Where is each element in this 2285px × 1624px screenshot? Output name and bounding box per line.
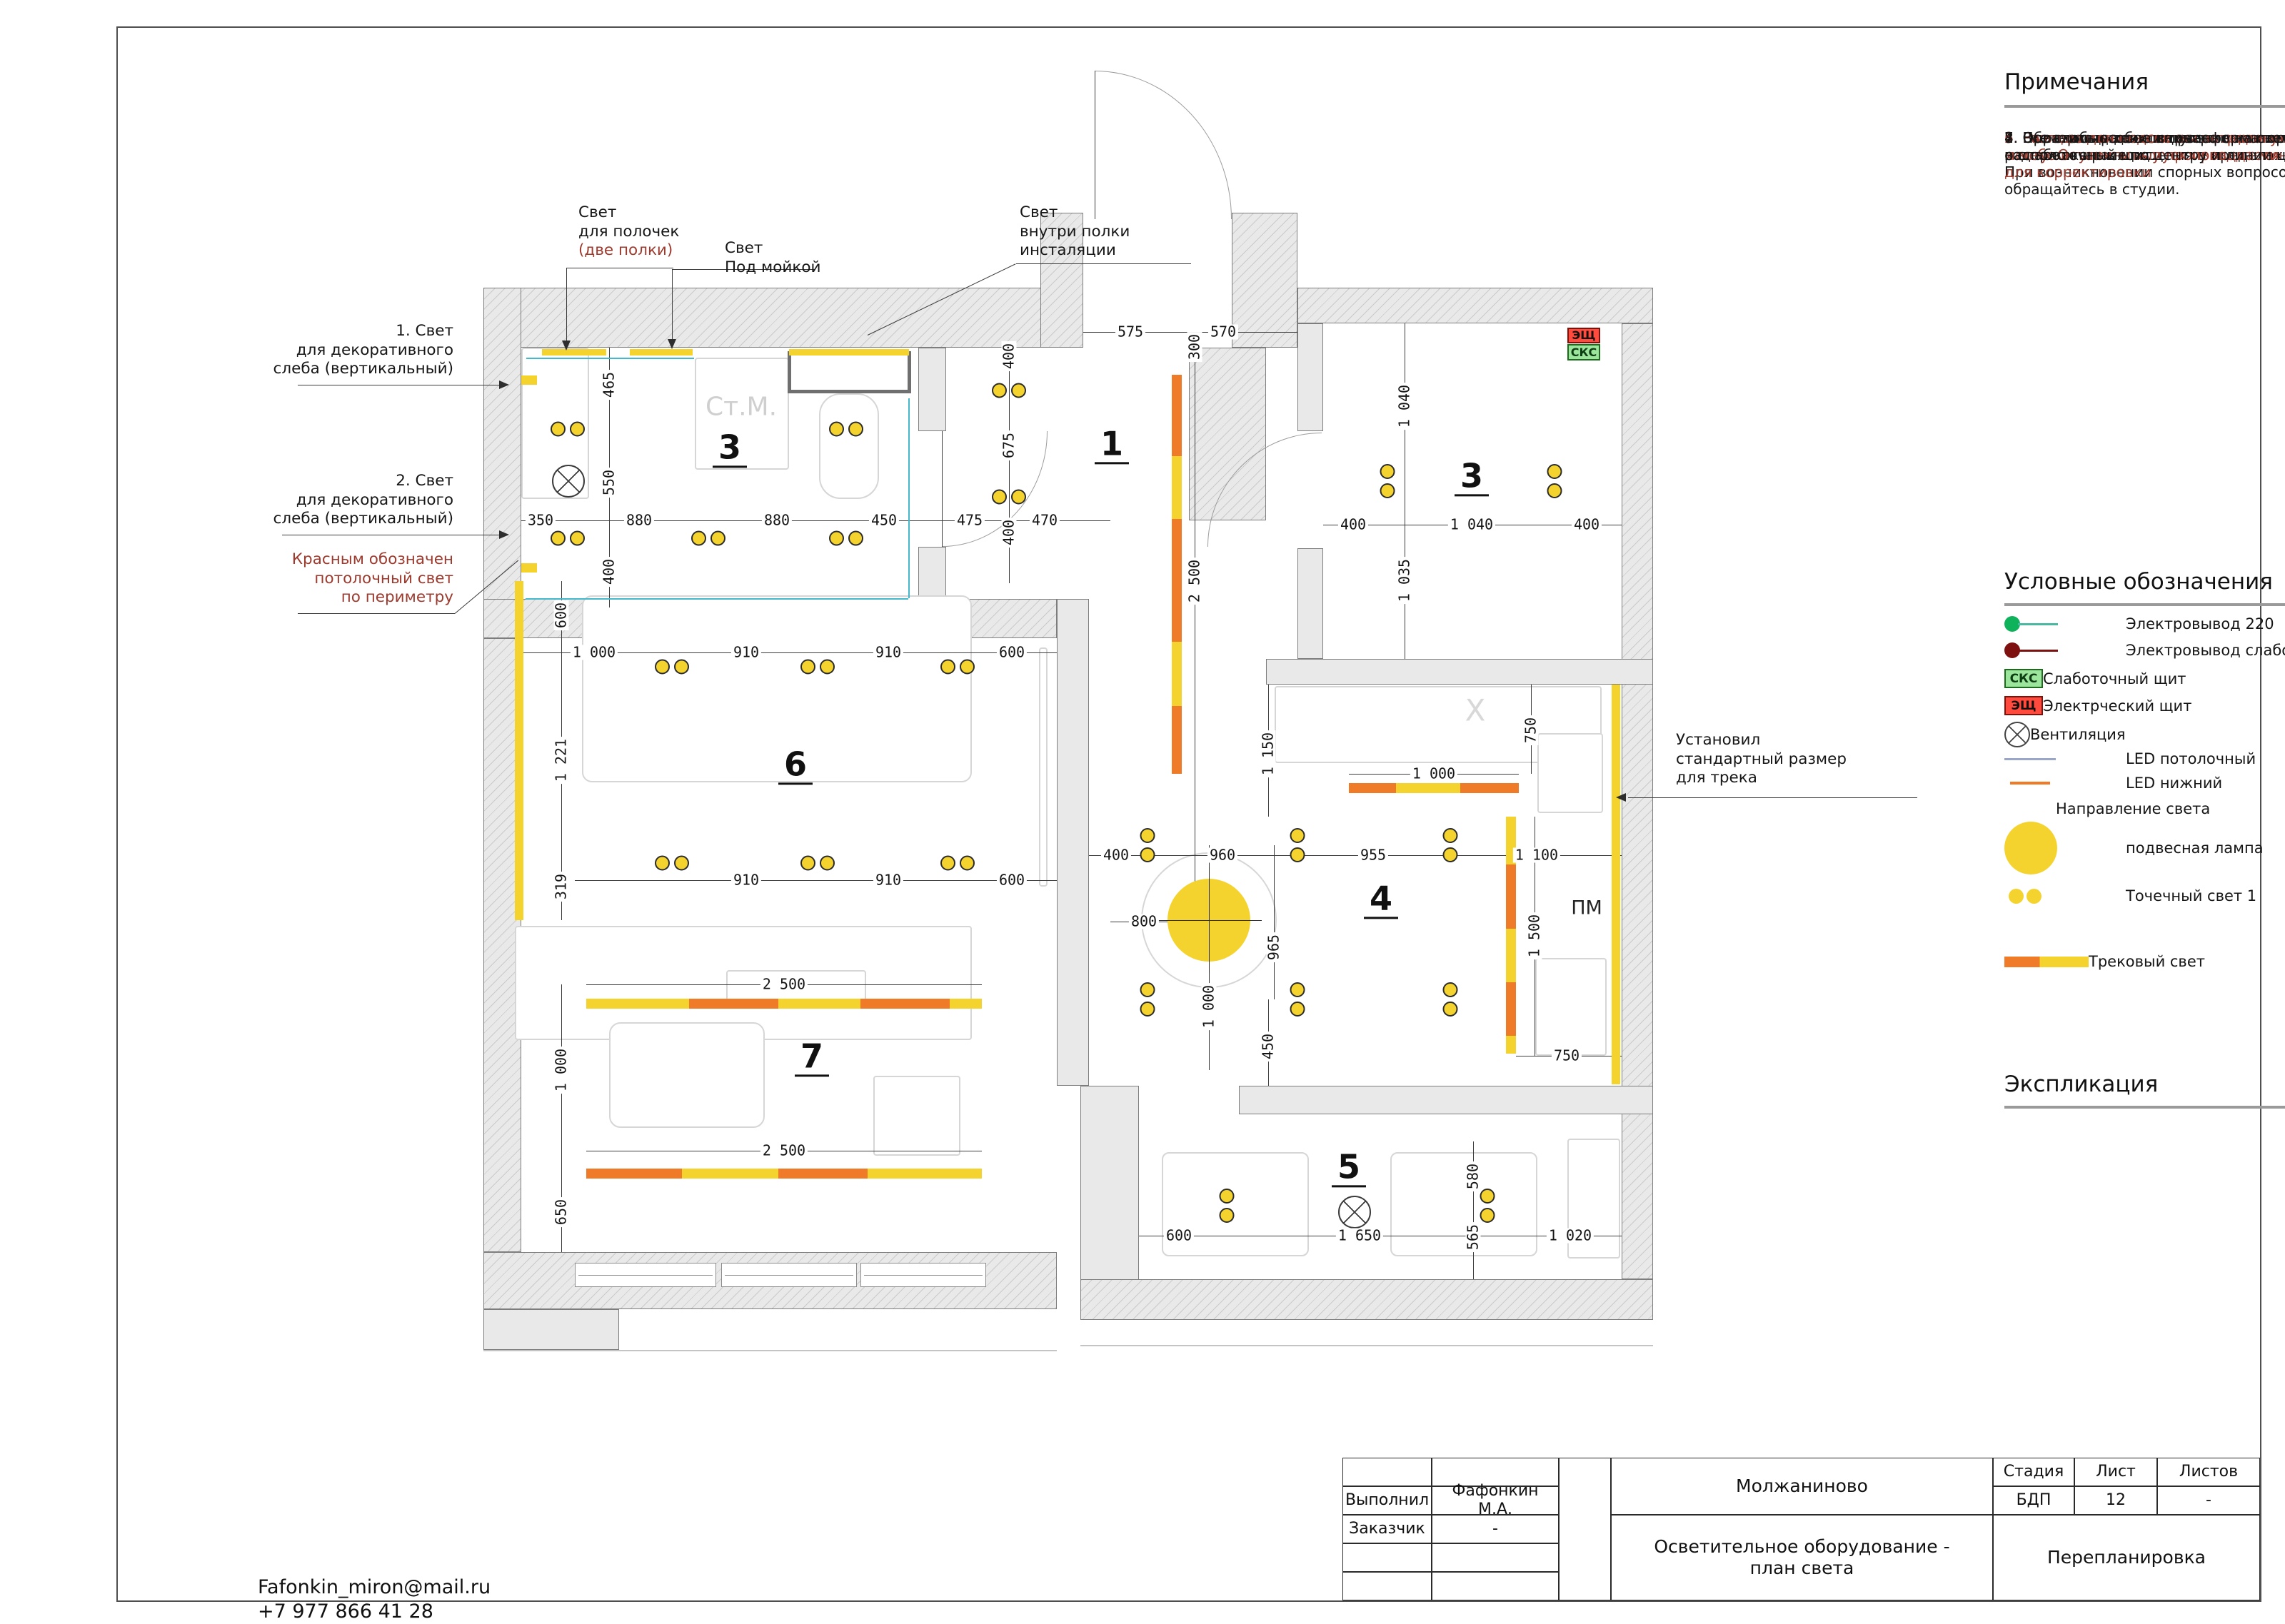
annotation-line: для декоративного — [236, 491, 453, 510]
leader-arrow-icon — [499, 530, 509, 539]
dimension-label: 575 — [1115, 325, 1145, 340]
dimension-label: 2 500 — [760, 977, 808, 992]
annotation-line: 2. Свет — [236, 472, 453, 491]
dimension-label: 800 — [1129, 914, 1159, 929]
dimension-label: 880 — [624, 513, 654, 528]
drawing-line — [1405, 323, 1405, 659]
spot-light-icon — [1011, 383, 1026, 398]
light-dot-pair — [992, 490, 1026, 505]
dimension-label: 1 150 — [1261, 730, 1276, 777]
dimension-label: 600 — [554, 600, 569, 630]
spot-light-icon — [940, 660, 955, 675]
dimension-label: 2 500 — [1187, 558, 1202, 605]
room-number: 1 — [1095, 426, 1129, 464]
sheet-number: 12 — [2074, 1486, 2157, 1515]
spot-light-icon — [1480, 1189, 1495, 1204]
legend-item: LED нижний — [2004, 775, 2222, 792]
track-light-segment — [1172, 706, 1182, 774]
legend-symbol-icon — [2004, 642, 2126, 658]
spot-light-icon — [1220, 1189, 1235, 1204]
wall-segment — [1297, 548, 1323, 659]
drawing-line — [483, 1350, 1057, 1351]
plan-label: X — [1465, 693, 1486, 728]
annotation-line-red: потолочный свет — [236, 570, 453, 589]
spot-light-icon — [1443, 828, 1458, 843]
drawing-line — [942, 431, 943, 547]
dimension-label: 910 — [873, 645, 903, 660]
legend-item-label: Вентиляция — [2030, 726, 2126, 743]
furniture-outline — [582, 595, 972, 782]
annotation-line: инсталяции — [1020, 241, 1130, 261]
dimension-label: 1 500 — [1527, 912, 1542, 959]
light-dot-pair — [829, 531, 863, 546]
legend-symbol-icon — [2004, 782, 2126, 785]
annotation-line-red: Красным обозначен — [236, 550, 453, 570]
document-title: Осветительное оборудование - план света — [1611, 1515, 1993, 1600]
drawing-line — [575, 880, 1057, 881]
window — [575, 1263, 716, 1287]
door-arc — [1095, 71, 1232, 219]
light-dot-pair — [1443, 982, 1458, 1017]
notes-title-underline — [2004, 105, 2285, 108]
spot-light-icon — [1547, 464, 1562, 479]
drawing-line — [1628, 797, 1917, 798]
legend-item: LED потолочный — [2004, 750, 2256, 767]
dimension-label: 1 100 — [1513, 848, 1560, 863]
drawing-line — [1195, 348, 1195, 906]
spot-light-icon — [1380, 483, 1395, 498]
dimension-label: 1 000 — [571, 645, 618, 660]
track-light-segment — [1506, 864, 1516, 929]
track-light-segment — [1172, 375, 1182, 456]
track-light-segment — [950, 999, 982, 1009]
spot-light-icon — [848, 422, 863, 437]
spot-light-icon — [992, 383, 1007, 398]
annotation-line-red: (две полки) — [578, 241, 679, 261]
panel-tag: СКС — [1567, 344, 1600, 360]
dimension-label: 450 — [869, 513, 899, 528]
legend-item-label: Электрческий щит — [2043, 697, 2191, 715]
spot-light-icon — [1547, 483, 1562, 498]
annotation-line: Свет — [578, 203, 679, 223]
dimension-label: 1 020 — [1547, 1229, 1594, 1244]
wall-segment — [1239, 1086, 1653, 1114]
spot-light-icon — [848, 531, 863, 546]
annotation-perimeter-light: Красным обозначен потолочный свет по пер… — [236, 550, 453, 607]
legend-item-label: Электровывод 220 — [2126, 615, 2274, 632]
annotation-line: внутри полки — [1020, 223, 1130, 242]
track-light-segment — [778, 1169, 868, 1179]
spot-light-icon — [551, 531, 566, 546]
spot-light-icon — [820, 856, 835, 871]
dimension-label: 600 — [1164, 1229, 1194, 1244]
annotation-line: 1. Свет — [236, 322, 453, 341]
project-name: Молжаниново — [1611, 1458, 1993, 1515]
window — [860, 1263, 986, 1287]
title-block-cell — [1342, 1543, 1432, 1572]
dimension-label: 675 — [1002, 430, 1017, 460]
spot-light-icon — [655, 660, 670, 675]
light-dot-pair — [655, 660, 689, 675]
light-dot-pair — [1140, 828, 1155, 862]
title-block-cell — [1559, 1458, 1611, 1600]
drawing-line — [1080, 1345, 1653, 1346]
dimension-label: 350 — [526, 513, 556, 528]
spot-light-icon — [710, 531, 725, 546]
legend-symbol-icon — [2004, 822, 2126, 874]
wall-segment — [483, 288, 1057, 348]
legend-item-label: Направление света — [2056, 800, 2210, 817]
legend-item: Электровывод 220 — [2004, 615, 2274, 632]
dimension-label: 1 650 — [1336, 1229, 1383, 1244]
spot-light-icon — [674, 660, 689, 675]
work-type: Перепланировка — [1993, 1515, 2260, 1600]
furniture-outline — [873, 1076, 960, 1156]
spot-light-icon — [1011, 490, 1026, 505]
furniture-outline — [609, 1022, 765, 1128]
light-dot-pair — [992, 383, 1026, 398]
led-strip — [521, 563, 537, 573]
light-dot-pair — [1480, 1189, 1495, 1223]
dimension-label: 400 — [1002, 518, 1017, 548]
dimension-label: 475 — [955, 513, 985, 528]
dimension-label: 319 — [554, 872, 569, 902]
dimension-label: 465 — [602, 370, 617, 400]
led-strip — [542, 349, 606, 355]
legend-item-label: Трековый свет — [2089, 953, 2205, 970]
led-strip — [630, 349, 693, 355]
ventilation-icon — [1338, 1196, 1371, 1229]
light-dot-pair — [1380, 464, 1395, 498]
spot-light-icon — [1220, 1208, 1235, 1223]
dimension-label: 400 — [1338, 518, 1368, 533]
dimension-label: 570 — [1208, 325, 1238, 340]
drawing-line — [298, 613, 455, 614]
note-item: 8. Все слабые токи и трансформаторы выне… — [2004, 129, 2285, 163]
spot-light-icon — [1140, 1002, 1155, 1017]
drawing-line — [1095, 71, 1095, 219]
room-number: 5 — [1332, 1149, 1366, 1187]
legend-item: Электровывод слаботок — [2004, 642, 2285, 659]
dimension-label: 1 040 — [1397, 383, 1412, 430]
pendant-lamp-icon — [1167, 879, 1250, 962]
legend-item-label: Слаботочный щит — [2043, 670, 2186, 687]
light-dot-pair — [691, 531, 725, 546]
drawing-line — [672, 269, 673, 343]
drawing-line — [526, 358, 694, 359]
dimension-label: 400 — [1101, 848, 1131, 863]
annotation-decor-light-2: 2. Свет для декоративного слеба (вертика… — [236, 472, 453, 529]
wall-segment — [1297, 288, 1653, 323]
light-dot-pair — [1443, 828, 1458, 862]
spot-light-icon — [570, 531, 585, 546]
dimension-label: 910 — [731, 873, 761, 888]
light-dot-pair — [940, 660, 975, 675]
spot-light-icon — [829, 531, 844, 546]
spot-light-icon — [1380, 464, 1395, 479]
spot-light-icon — [1140, 847, 1155, 862]
dimension-label: 955 — [1358, 848, 1388, 863]
light-dot-pair — [655, 856, 689, 871]
spot-light-icon — [655, 856, 670, 871]
light-dot-pair — [800, 856, 835, 871]
leader-arrow-icon — [668, 339, 676, 349]
wall-segment — [1297, 323, 1323, 431]
track-light-segment — [682, 1169, 778, 1179]
light-dot-pair — [1547, 464, 1562, 498]
light-dot-pair — [551, 531, 585, 546]
spot-light-icon — [1443, 847, 1458, 862]
dimension-label: 1 221 — [554, 737, 569, 784]
spot-light-icon — [1140, 828, 1155, 843]
drawing-line — [1016, 263, 1191, 264]
title-block-cell — [1342, 1458, 1432, 1486]
dimension-label: 400 — [1002, 341, 1017, 371]
dimension-label: 1 035 — [1397, 557, 1412, 604]
furniture-outline — [1535, 958, 1607, 1056]
annotation-line: стандартный размер — [1676, 750, 1847, 770]
wall-segment — [1266, 659, 1653, 685]
room-number: 4 — [1364, 881, 1398, 919]
leader-arrow-icon — [562, 341, 571, 350]
spot-light-icon — [800, 856, 815, 871]
dimension-label: 965 — [1267, 932, 1282, 962]
wall-segment — [1080, 1279, 1653, 1320]
dimension-label: 565 — [1466, 1222, 1481, 1252]
dimension-label: 1 040 — [1448, 518, 1495, 533]
legend-symbol-icon: ЭЩ — [2004, 696, 2043, 715]
legend-item: Направление света — [2004, 800, 2210, 817]
annotation-sink-light: Свет Под мойкой — [725, 239, 820, 277]
legend-symbol-icon — [2004, 616, 2126, 632]
dimension-label: 1 000 — [554, 1046, 569, 1094]
legend-item-label: LED потолочный — [2126, 750, 2256, 767]
annotation-line: Свет — [1020, 203, 1130, 223]
panel-tag: ЭЩ — [1567, 328, 1600, 343]
drawing-line — [298, 385, 502, 385]
annotation-line: Установил — [1676, 731, 1847, 750]
window — [721, 1263, 857, 1287]
track-light-segment — [1172, 642, 1182, 706]
annotation-decor-light-1: 1. Свет для декоративного слеба (вертика… — [236, 322, 453, 379]
legend-symbol-icon — [2004, 889, 2126, 904]
dimension-label: 450 — [1261, 1032, 1276, 1061]
track-light-segment — [586, 1169, 682, 1179]
track-light-segment — [1172, 519, 1182, 642]
track-light-segment — [1506, 929, 1516, 982]
legend-item: подвесная лампа — [2004, 822, 2264, 874]
dimension-label: 650 — [554, 1197, 569, 1227]
dimension-label: 400 — [1572, 518, 1602, 533]
dimension-label: 960 — [1207, 848, 1237, 863]
plan-label: Ст.М. — [705, 393, 777, 422]
track-light-segment — [868, 1169, 982, 1179]
track-light-segment — [1349, 783, 1396, 793]
room-number: 6 — [778, 747, 813, 785]
title-block-cell — [1432, 1572, 1559, 1600]
spot-light-icon — [992, 490, 1007, 505]
legend-item: ЭЩ Электрческий щит — [2004, 696, 2191, 715]
dimension-label: 1 000 — [1410, 767, 1457, 782]
annotation-shelf-light: Свет для полочек (две полки) — [578, 203, 679, 261]
drawing-line — [566, 268, 567, 343]
customer-label: Заказчик — [1342, 1515, 1432, 1543]
sheets-label: Листов — [2157, 1458, 2260, 1486]
title-block-cell — [1342, 1572, 1432, 1600]
drawing-line — [566, 268, 673, 268]
light-dot-pair — [1290, 828, 1305, 862]
legend-item-label: Электровывод слаботок — [2126, 642, 2285, 659]
track-light-segment — [586, 999, 689, 1009]
furniture-outline — [788, 351, 911, 393]
led-strip — [515, 581, 523, 920]
spot-light-icon — [691, 531, 706, 546]
legend-symbol-icon — [2004, 722, 2030, 747]
spot-light-icon — [820, 660, 835, 675]
light-dot-pair — [551, 422, 585, 437]
spot-light-icon — [674, 856, 689, 871]
legend-item: Трековый свет — [2004, 953, 2205, 970]
spot-light-icon — [940, 856, 955, 871]
leader-arrow-icon — [1616, 793, 1626, 802]
leader-arrow-icon — [499, 380, 509, 389]
drawing-line — [908, 398, 910, 598]
light-dot-pair — [1140, 982, 1155, 1017]
track-light-segment — [1506, 1036, 1516, 1054]
furniture-outline — [1039, 647, 1048, 887]
legend-symbol-icon — [2004, 957, 2089, 967]
drawing-line — [526, 598, 908, 600]
furniture-outline — [1537, 733, 1603, 813]
dimension-label: 550 — [602, 468, 617, 498]
ventilation-icon — [552, 465, 585, 498]
track-light-segment — [689, 999, 778, 1009]
spot-light-icon — [551, 422, 566, 437]
legend-item: СКС Слаботочный щит — [2004, 669, 2186, 688]
dimension-label: 1 000 — [1202, 983, 1217, 1030]
dimension-label: 2 500 — [760, 1144, 808, 1159]
track-light-segment — [1460, 783, 1519, 793]
wall-segment — [1622, 323, 1653, 1279]
track-light-segment — [1506, 982, 1516, 1036]
light-dot-pair — [829, 422, 863, 437]
dimension-label: 600 — [997, 645, 1027, 660]
legend-symbol-icon — [2004, 758, 2126, 760]
wall-segment — [1232, 213, 1297, 348]
stage-label: Стадия — [1993, 1458, 2074, 1486]
annotation-line: Свет — [725, 239, 820, 258]
legend-symbol-icon: СКС — [2004, 669, 2043, 688]
annotation-track-size: Установил стандартный размер для трека — [1676, 731, 1847, 788]
track-light-segment — [860, 999, 950, 1009]
dimension-label: 600 — [997, 873, 1027, 888]
wall-segment — [483, 1309, 619, 1350]
dimension-label: 880 — [762, 513, 792, 528]
annotation-line-red: по периметру — [236, 588, 453, 607]
legend-item-label: подвесная лампа — [2126, 839, 2264, 857]
customer-value: - — [1432, 1515, 1559, 1543]
explication-title: Экспликация — [2004, 1071, 2158, 1097]
legend-item-label: Точечный свет 1 — [2126, 887, 2256, 904]
annotation-line: слеба (вертикальный) — [236, 510, 453, 529]
track-light-segment — [1396, 783, 1460, 793]
annotation-inst-shelf-light: Свет внутри полки инсталяции — [1020, 203, 1130, 261]
dimension-label: 400 — [602, 557, 617, 587]
wall-segment — [918, 547, 946, 599]
led-strip — [789, 349, 909, 355]
led-strip — [521, 375, 537, 385]
spot-light-icon — [829, 422, 844, 437]
executed-label: Выполнил — [1342, 1486, 1432, 1515]
dimension-label: 470 — [1030, 513, 1060, 528]
room-number: 3 — [713, 430, 747, 468]
track-light-segment — [1172, 456, 1182, 519]
legend-title: Условные обозначения — [2004, 569, 2273, 595]
dimension-label: 750 — [1524, 715, 1539, 745]
annotation-line: Под мойкой — [725, 258, 820, 278]
legend-title-underline — [2004, 603, 2285, 606]
spot-light-icon — [960, 856, 975, 871]
spot-light-icon — [1290, 1002, 1305, 1017]
spot-light-icon — [800, 660, 815, 675]
track-light-segment — [778, 999, 860, 1009]
dimension-label: 300 — [1187, 332, 1202, 362]
title-block-cell — [1432, 1543, 1559, 1572]
furniture-outline — [819, 393, 879, 499]
contact-info: Fafonkin_miron@mail.ru +7 977 866 41 28 — [258, 1575, 491, 1624]
legend-item-label: LED нижний — [2126, 775, 2222, 792]
light-dot-pair — [1290, 982, 1305, 1017]
dimension-label: 910 — [731, 645, 761, 660]
legend-item: Вентиляция — [2004, 722, 2126, 747]
legend-item: Точечный свет 1 — [2004, 887, 2256, 904]
annotation-line: для полочек — [578, 223, 679, 242]
explication-title-underline — [2004, 1106, 2285, 1109]
spot-light-icon — [960, 660, 975, 675]
light-dot-pair — [1220, 1189, 1235, 1223]
led-strip — [1612, 685, 1620, 1084]
annotation-line: для трека — [1676, 769, 1847, 788]
light-dot-pair — [800, 660, 835, 675]
room-number: 3 — [1455, 458, 1489, 496]
spot-light-icon — [1443, 1002, 1458, 1017]
room-number: 7 — [795, 1039, 829, 1076]
plan-label: ПМ — [1571, 897, 1602, 919]
spot-light-icon — [1290, 828, 1305, 843]
stage-value: БДП — [1993, 1486, 2074, 1515]
dimension-label: 910 — [873, 873, 903, 888]
light-dot-pair — [940, 856, 975, 871]
spot-light-icon — [1480, 1208, 1495, 1223]
wall-segment — [918, 348, 946, 431]
drawing-line — [1274, 845, 1275, 999]
executed-value: Фафонкин М.А. — [1432, 1486, 1559, 1515]
drawing-line — [282, 535, 502, 535]
spot-light-icon — [1290, 982, 1305, 997]
wall-segment — [1057, 599, 1089, 1086]
spot-light-icon — [1290, 847, 1305, 862]
annotation-line: для декоративного — [236, 341, 453, 360]
spot-light-icon — [570, 422, 585, 437]
sheet-border: ЭЩСКС 4655504003508808804504754705755703… — [116, 26, 2261, 1602]
sheet-label: Лист — [2074, 1458, 2157, 1486]
spot-light-icon — [1443, 982, 1458, 997]
spot-light-icon — [1140, 982, 1155, 997]
annotation-line: слеба (вертикальный) — [236, 360, 453, 379]
dimension-label: 580 — [1466, 1161, 1481, 1191]
dimension-label: 750 — [1552, 1049, 1582, 1064]
notes-title: Примечания — [2004, 69, 2149, 95]
